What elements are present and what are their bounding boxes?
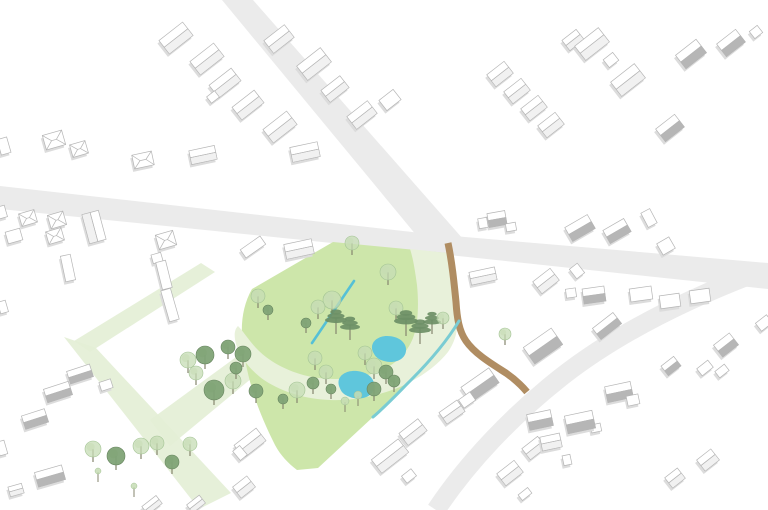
tree-canopy bbox=[131, 483, 137, 489]
building-roof bbox=[562, 454, 572, 465]
tree-canopy-highlight bbox=[166, 457, 173, 464]
tree-canopy-highlight bbox=[500, 330, 506, 336]
building bbox=[504, 222, 517, 235]
tree-canopy bbox=[354, 391, 362, 399]
building bbox=[581, 286, 606, 307]
tree-canopy-highlight bbox=[346, 238, 353, 245]
building bbox=[564, 288, 577, 301]
tree-canopy-highlight bbox=[198, 348, 207, 357]
tree-canopy-highlight bbox=[382, 266, 390, 274]
building bbox=[476, 217, 488, 231]
tree-canopy-highlight bbox=[390, 303, 397, 310]
tree-canopy bbox=[341, 397, 349, 405]
roof-plane bbox=[629, 286, 653, 302]
tree-canopy bbox=[95, 468, 101, 474]
tree-canopy-highlight bbox=[264, 306, 269, 311]
tree-canopy-highlight bbox=[359, 348, 366, 355]
pine-canopy bbox=[330, 309, 341, 314]
tree-canopy-highlight bbox=[368, 360, 376, 368]
building-roof bbox=[505, 222, 516, 232]
roof-plane bbox=[659, 293, 681, 309]
roof-plane bbox=[689, 288, 711, 304]
tree-canopy-highlight bbox=[151, 438, 158, 445]
building-roof bbox=[689, 288, 711, 304]
tree-canopy-highlight bbox=[389, 377, 395, 383]
tree-canopy-highlight bbox=[327, 385, 332, 390]
site-plan-map bbox=[0, 0, 768, 510]
building-roof bbox=[626, 394, 640, 406]
tree-canopy-highlight bbox=[182, 354, 190, 362]
tree-canopy-highlight bbox=[135, 440, 143, 448]
pine-canopy bbox=[400, 310, 412, 316]
building bbox=[658, 293, 681, 312]
building-roof bbox=[629, 286, 653, 302]
roof-plane bbox=[478, 217, 489, 228]
tree-canopy-highlight bbox=[252, 291, 259, 298]
roof-plane bbox=[565, 288, 576, 298]
tree-canopy-highlight bbox=[320, 367, 327, 374]
tree-canopy-highlight bbox=[227, 375, 235, 383]
building bbox=[688, 288, 711, 307]
tree-canopy-highlight bbox=[380, 367, 387, 374]
roof-plane bbox=[505, 222, 516, 232]
roof-plane bbox=[626, 394, 640, 406]
tree-canopy-highlight bbox=[184, 439, 191, 446]
building-roof bbox=[478, 217, 489, 228]
tree-canopy-highlight bbox=[190, 368, 197, 375]
tree-canopy-highlight bbox=[291, 384, 299, 392]
tree-canopy-highlight bbox=[109, 449, 118, 458]
tree-canopy-highlight bbox=[312, 302, 319, 309]
tree-canopy-highlight bbox=[222, 342, 229, 349]
pine-canopy bbox=[427, 312, 436, 316]
building-roof bbox=[582, 286, 606, 304]
tree-canopy-highlight bbox=[206, 383, 216, 393]
building-roof bbox=[659, 293, 681, 309]
pine-canopy bbox=[345, 317, 355, 322]
tree-canopy-highlight bbox=[231, 364, 237, 370]
tree-canopy-highlight bbox=[438, 314, 444, 320]
tree-canopy-highlight bbox=[325, 293, 334, 302]
tree-canopy-highlight bbox=[87, 443, 95, 451]
tree-canopy-highlight bbox=[250, 386, 257, 393]
tree-canopy-highlight bbox=[302, 319, 307, 324]
building-roof bbox=[565, 288, 576, 298]
building-roof bbox=[487, 211, 507, 228]
tree-canopy-highlight bbox=[237, 348, 245, 356]
roof-plane bbox=[562, 454, 572, 465]
tree-canopy-highlight bbox=[309, 353, 316, 360]
tree-canopy-highlight bbox=[279, 395, 284, 400]
site-plan-canvas bbox=[0, 0, 768, 510]
building bbox=[628, 286, 653, 305]
building bbox=[485, 211, 507, 231]
tree-canopy-highlight bbox=[308, 379, 314, 385]
tree-canopy-highlight bbox=[368, 384, 375, 391]
building bbox=[561, 454, 572, 468]
